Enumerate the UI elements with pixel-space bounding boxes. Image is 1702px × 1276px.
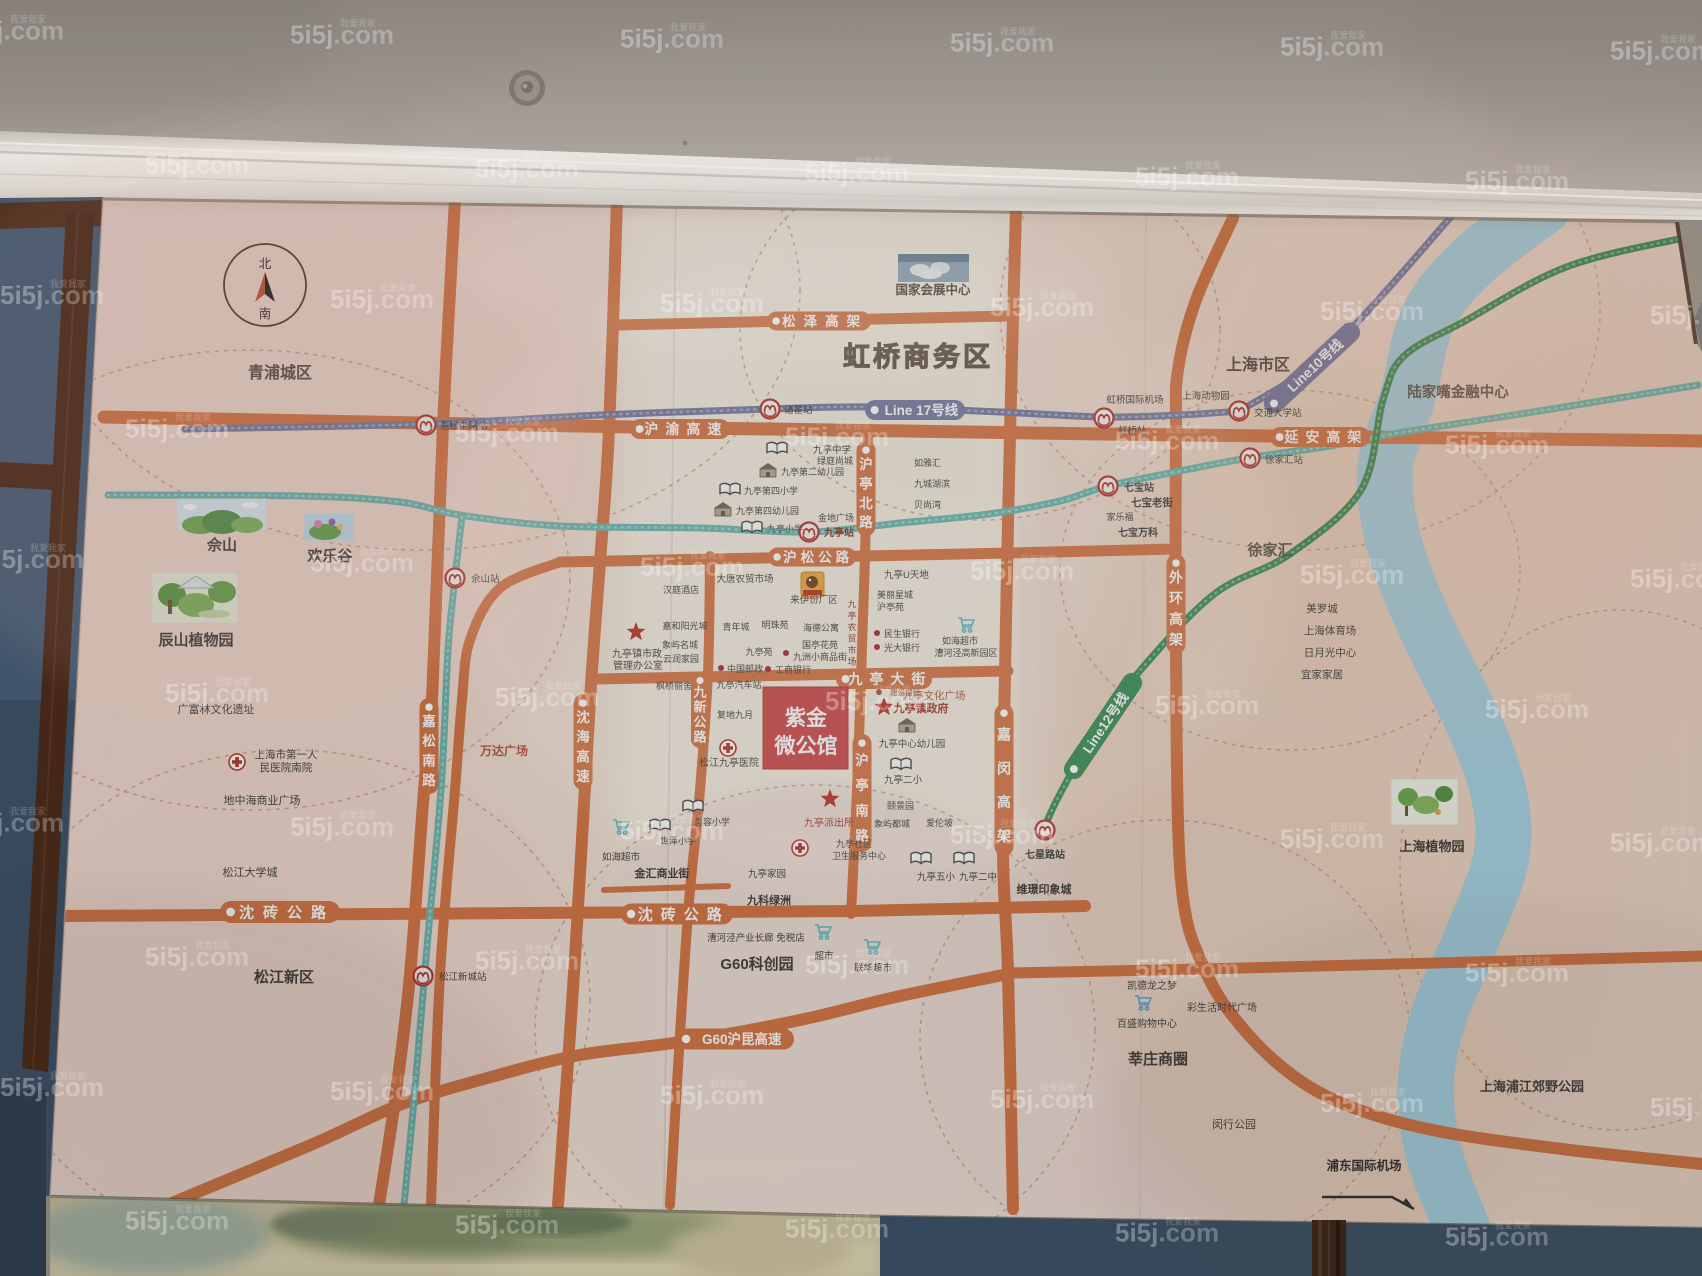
svg-text:如海超市: 如海超市 (602, 851, 641, 863)
svg-text:嘉: 嘉 (421, 713, 436, 729)
svg-text:G60科创园: G60科创园 (720, 955, 793, 973)
svg-text:路: 路 (422, 772, 436, 788)
svg-text:九科绿洲: 九科绿洲 (746, 893, 791, 907)
svg-text:上海市第一人: 上海市第一人 (255, 748, 318, 761)
svg-text:漕河泾产业长廊 免税店: 漕河泾产业长廊 免税店 (707, 932, 805, 944)
svg-text:松江大学城: 松江大学城 (223, 865, 278, 879)
svg-text:沈砖公路: 沈砖公路 (638, 905, 730, 923)
svg-text:维璟印象城: 维璟印象城 (1017, 882, 1072, 896)
svg-text:金汇商业街: 金汇商业街 (634, 866, 690, 880)
svg-text:上海植物园: 上海植物园 (1399, 839, 1464, 854)
svg-text:地中海商业广场: 地中海商业广场 (224, 793, 301, 807)
svg-text:G60沪昆高速: G60沪昆高速 (702, 1031, 782, 1047)
svg-text:南: 南 (422, 752, 436, 768)
svg-text:九亭二中: 九亭二中 (959, 871, 997, 883)
svg-text:松: 松 (422, 733, 436, 749)
svg-text:民医院南院: 民医院南院 (260, 761, 313, 774)
